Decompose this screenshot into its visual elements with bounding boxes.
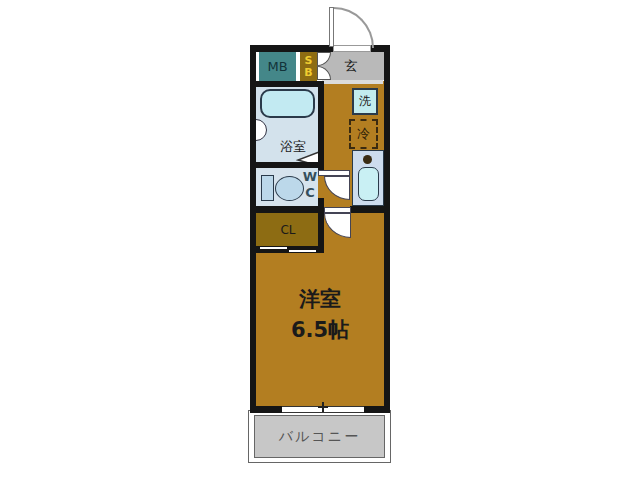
floorplan-canvas: バルコニー 玄 MB S B 浴室 W C CL 洗 冷	[0, 0, 640, 480]
main-room-name: 洋室	[299, 287, 341, 311]
main-room-size: 6.5帖	[291, 318, 349, 342]
wall-corridor-vertical-upper	[318, 81, 324, 170]
main-room-label: 洋室 6.5帖	[256, 284, 384, 346]
wall-bath-wc	[250, 162, 322, 168]
wc-label-top: W	[303, 169, 317, 184]
washing-machine-icon: 洗	[352, 88, 378, 115]
wc-label: W C	[302, 169, 318, 201]
wall-right	[384, 45, 390, 413]
entrance-label: 玄	[345, 59, 358, 73]
entrance-step	[322, 80, 383, 84]
balcony-label: バルコニー	[279, 429, 360, 444]
washer-label: 洗	[359, 95, 371, 108]
meter-box-label: MB	[267, 59, 287, 74]
burner-icon	[363, 155, 372, 164]
balcony-floor: バルコニー	[254, 415, 385, 458]
closet: CL	[256, 213, 320, 246]
wall-corridor-room	[350, 206, 390, 213]
wc-label-bottom: C	[305, 185, 315, 200]
entrance-door-swing-icon	[334, 7, 374, 48]
wall-top-left	[250, 45, 334, 52]
closet-slider-panel-left	[260, 247, 287, 249]
refrigerator-label: 冷	[357, 127, 370, 141]
wall-under-meterbox	[250, 81, 322, 87]
closet-label: CL	[280, 223, 295, 237]
wall-left	[250, 45, 256, 413]
closet-slider-panel-right	[289, 250, 316, 252]
wall-bottom-left	[250, 406, 282, 413]
meter-box: MB	[259, 52, 296, 81]
bathtub-icon	[260, 89, 315, 118]
toilet-tank-icon	[261, 175, 274, 201]
shoe-box: S B	[300, 52, 317, 81]
window-center-tick-horizontal	[318, 406, 328, 408]
toilet-bowl-icon	[275, 176, 304, 201]
refrigerator-icon: 冷	[349, 119, 378, 149]
wall-bottom-right	[364, 406, 390, 413]
shoe-box-label-bottom: B	[304, 66, 312, 79]
kitchen-sink-icon	[358, 167, 379, 201]
wall-wc-closet	[250, 206, 324, 213]
